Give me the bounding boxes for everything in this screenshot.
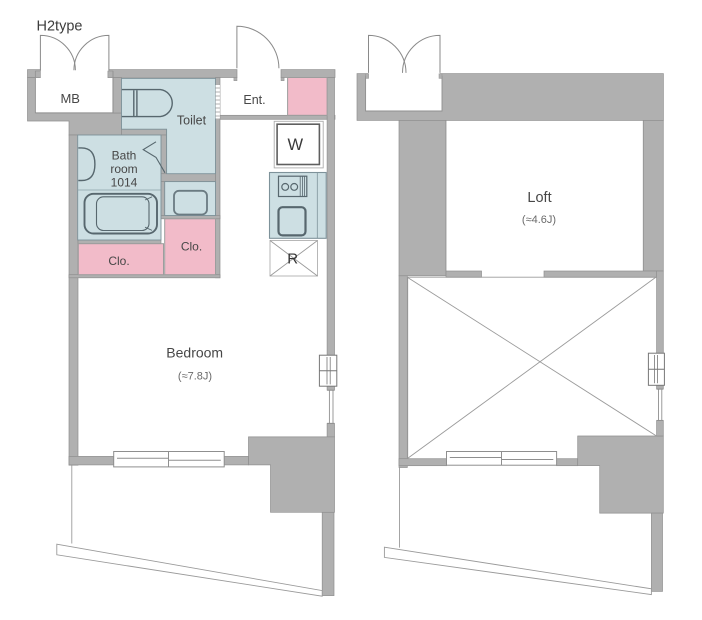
svg-text:MB: MB (60, 91, 80, 106)
svg-text:W: W (288, 136, 304, 154)
svg-text:H2type: H2type (37, 19, 83, 35)
svg-text:Clo.: Clo. (108, 254, 129, 268)
svg-text:Bath: Bath (112, 149, 137, 163)
svg-text:1014: 1014 (111, 176, 138, 190)
svg-text:(≈7.8J): (≈7.8J) (178, 371, 212, 383)
svg-text:Loft: Loft (527, 190, 551, 206)
svg-text:R: R (287, 250, 298, 267)
svg-text:Clo.: Clo. (181, 240, 202, 254)
svg-text:(≈4.6J): (≈4.6J) (522, 214, 556, 226)
svg-text:Bedroom: Bedroom (166, 345, 223, 361)
svg-text:room: room (110, 162, 137, 176)
svg-text:Toilet: Toilet (177, 114, 207, 128)
svg-text:Ent.: Ent. (243, 93, 265, 107)
